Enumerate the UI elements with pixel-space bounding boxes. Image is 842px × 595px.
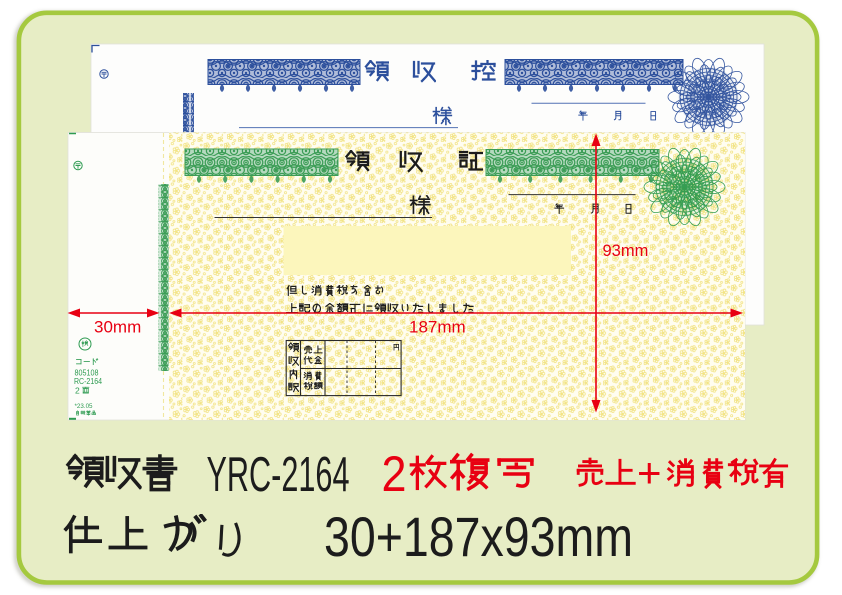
svg-text:30+187x93mm: 30+187x93mm xyxy=(324,505,633,568)
svg-text:2: 2 xyxy=(382,446,407,502)
svg-text:2: 2 xyxy=(75,386,80,396)
svg-text:187mm: 187mm xyxy=(409,318,466,337)
svg-text:RC-2164: RC-2164 xyxy=(74,376,102,386)
svg-text:30mm: 30mm xyxy=(94,318,141,337)
svg-text:+: + xyxy=(637,449,662,496)
svg-text:93mm: 93mm xyxy=(603,242,649,260)
svg-text:*23.05: *23.05 xyxy=(75,403,93,410)
svg-text:YRC-2164: YRC-2164 xyxy=(207,448,350,502)
